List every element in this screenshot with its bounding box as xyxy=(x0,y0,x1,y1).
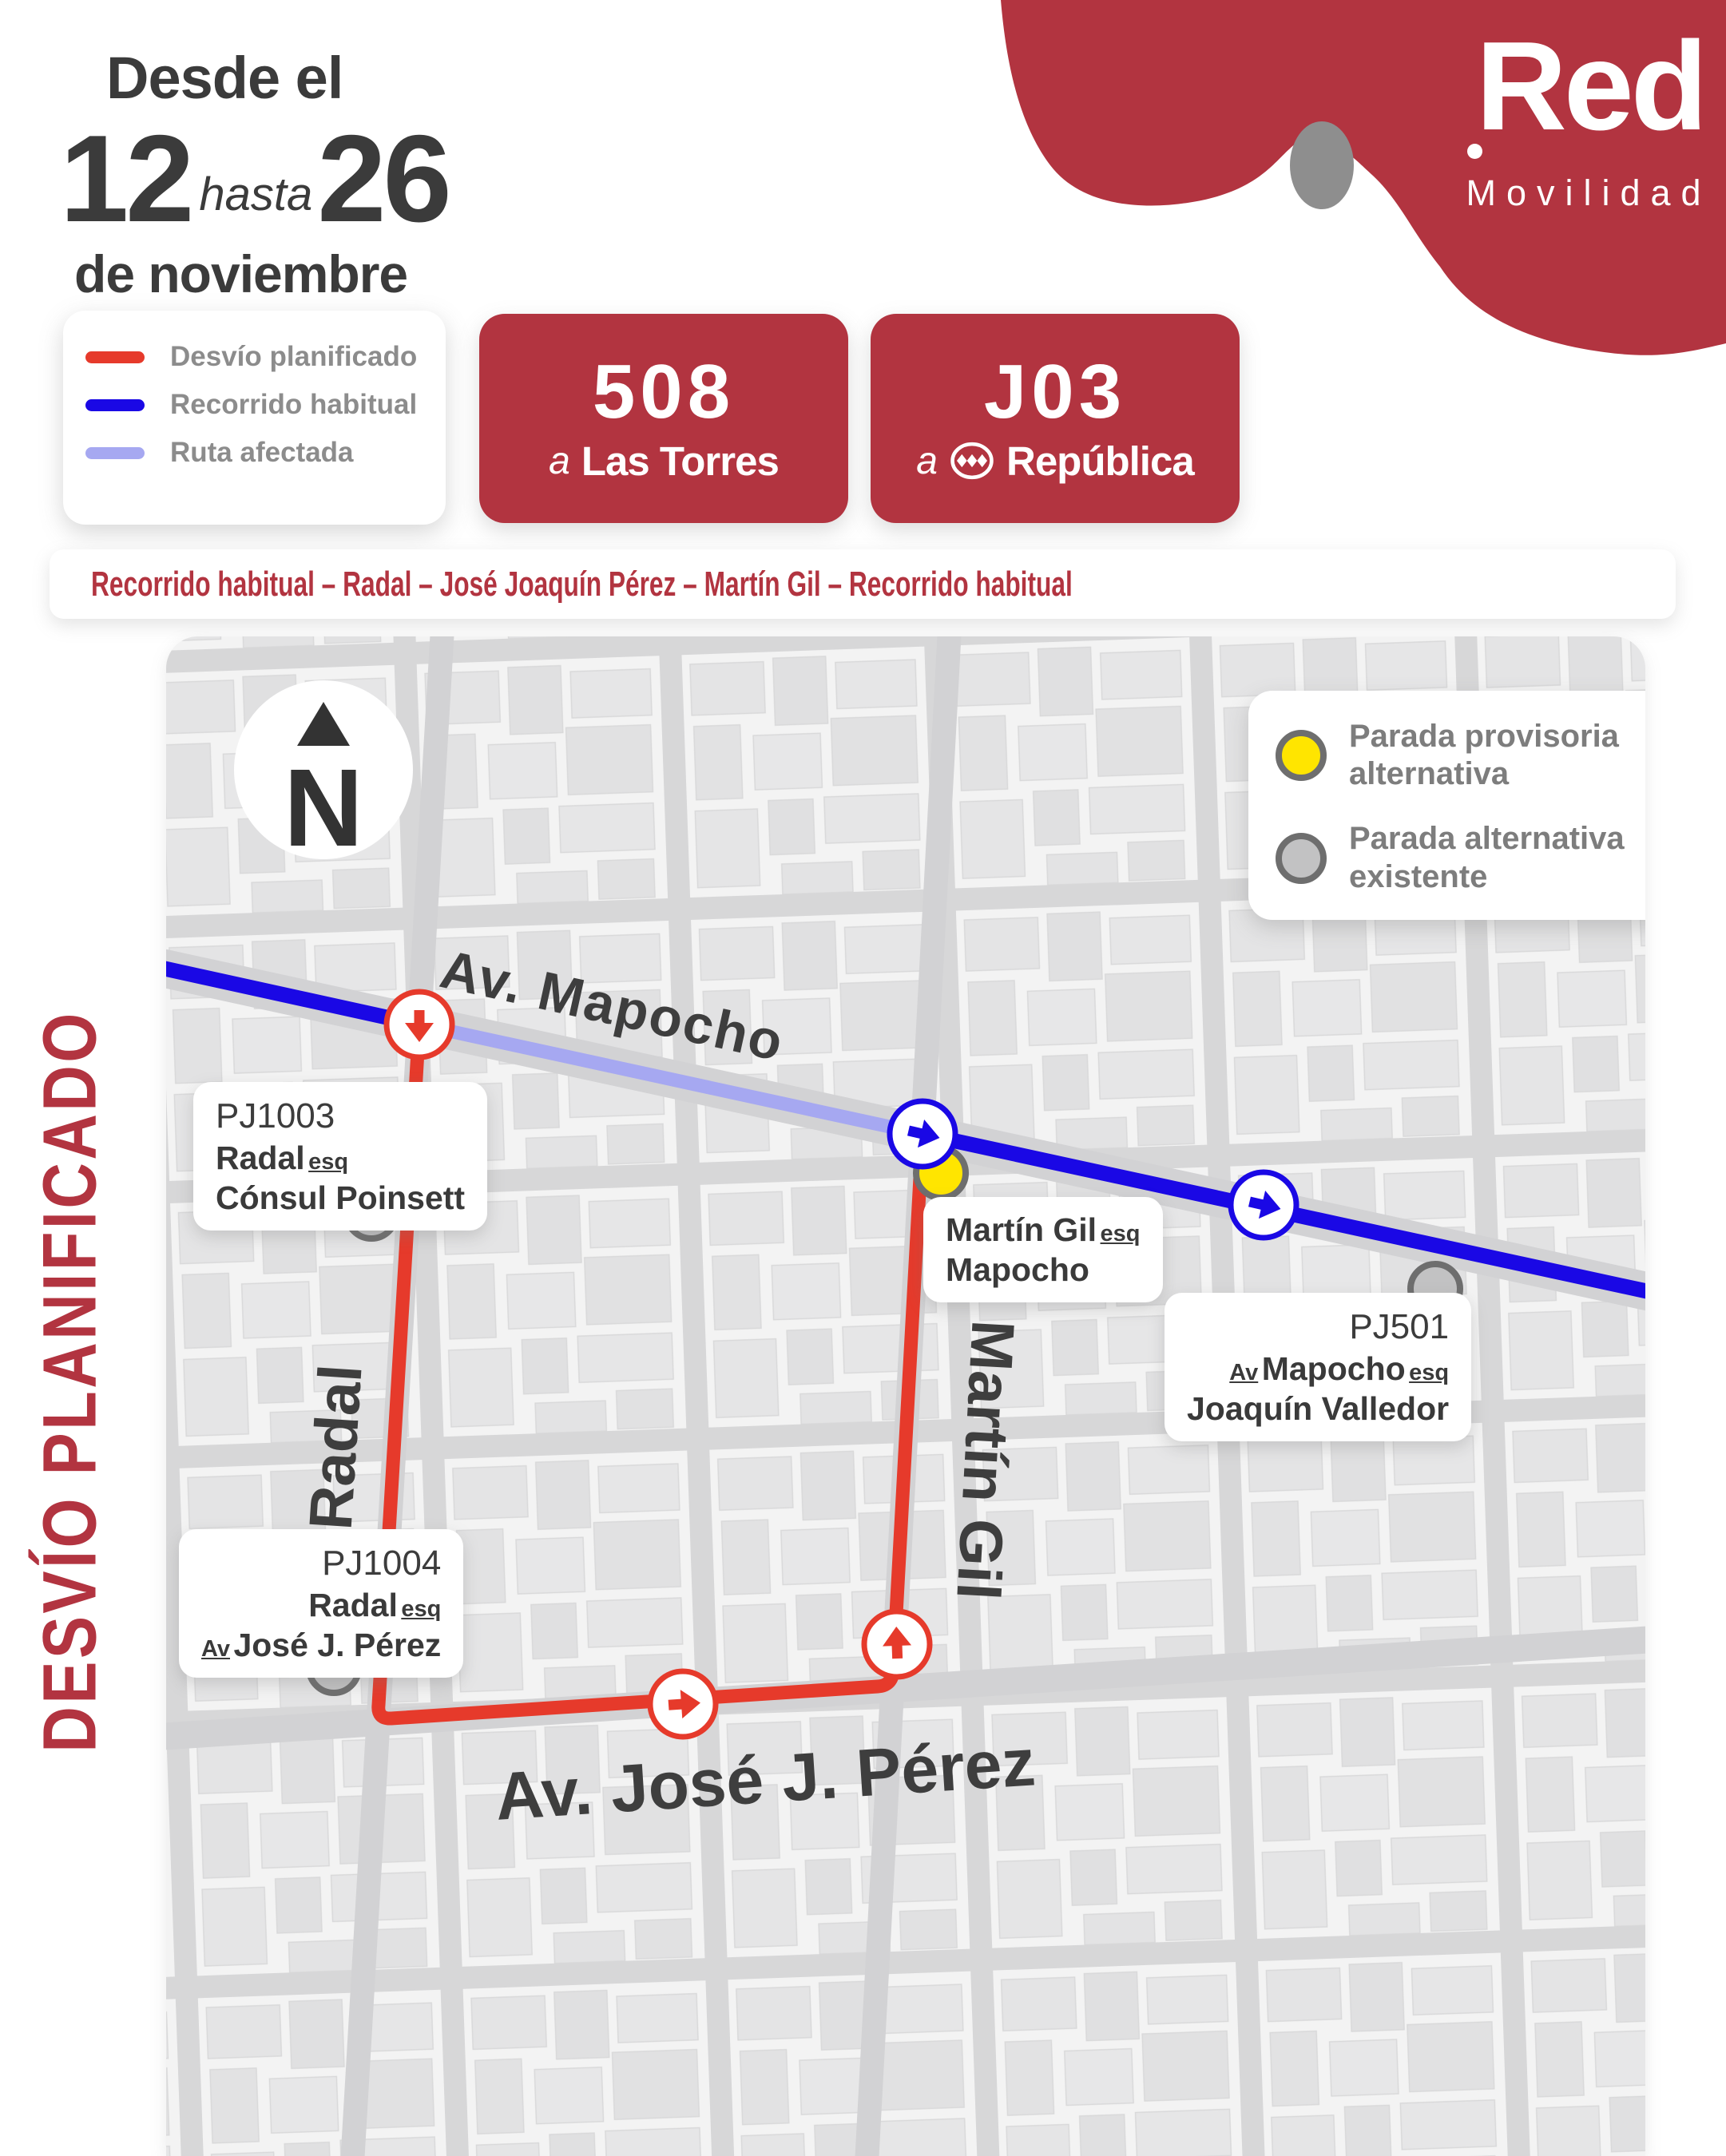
stop-card-martin-gil: Martín Gil esq Mapocho xyxy=(923,1197,1163,1302)
stop-street: Cónsul Poinsett xyxy=(216,1179,465,1216)
line-legend-card: Desvío planificado Recorrido habitual Ru… xyxy=(63,311,446,525)
route-button-508[interactable]: 508 a Las Torres xyxy=(479,314,848,523)
route-code: J03 xyxy=(984,352,1126,433)
stop-card-pj501: PJ501 Av Mapocho esq Joaquín Valledor xyxy=(1165,1293,1471,1441)
stop-code: PJ1004 xyxy=(201,1542,441,1585)
route-destination: República xyxy=(1006,438,1194,485)
habitual-direction-marker2-right-arrow-icon xyxy=(1231,1172,1296,1238)
yellow-stop-icon xyxy=(1276,730,1327,781)
stop-legend-card: Parada provisoria alternativa Parada alt… xyxy=(1248,691,1645,920)
detour-direction-marker-right-arrow-icon xyxy=(650,1671,716,1737)
detour-description-text: Recorrido habitual – Radal – José Joaquí… xyxy=(91,565,1073,604)
stop-legend-label: Parada alternativa existente xyxy=(1349,820,1645,895)
date-to: 26 xyxy=(317,117,448,240)
stop-legend-label: Parada provisoria alternativa xyxy=(1349,718,1645,793)
street-label-radal: Radal xyxy=(296,1362,375,1532)
brand-subtitle: Movilidad xyxy=(1429,172,1726,214)
detour-description-bar: Recorrido habitual – Radal – José Joaquí… xyxy=(50,549,1676,619)
stop-av-tag: Av xyxy=(201,1636,230,1662)
legend-label: Desvío planificado xyxy=(170,341,417,373)
stop-esq-tag: esq xyxy=(1409,1360,1449,1385)
legend-row-affected: Ruta afectada xyxy=(85,429,446,477)
habitual-direction-marker-right-arrow-icon xyxy=(890,1101,955,1167)
stop-av-tag: Av xyxy=(1229,1360,1258,1385)
route-dest-prefix: a xyxy=(916,439,938,483)
stop-code: PJ1003 xyxy=(216,1095,465,1138)
stop-street: Joaquín Valledor xyxy=(1187,1390,1449,1427)
blob-gray-dot xyxy=(1290,121,1354,209)
legend-row-detour: Desvío planificado xyxy=(85,333,446,381)
detour-start-marker-down-arrow-icon xyxy=(387,992,452,1057)
date-connector: hasta xyxy=(199,168,312,221)
stop-legend-existing: Parada alternativa existente xyxy=(1276,820,1645,895)
date-from: 12 xyxy=(60,117,191,240)
route-dest-prefix: a xyxy=(549,439,570,483)
compass-letter: N xyxy=(284,747,363,870)
stop-esq-tag: esq xyxy=(401,1596,441,1622)
route-code: 508 xyxy=(593,352,735,433)
stop-street: Radal xyxy=(308,1587,398,1623)
stop-esq-tag: esq xyxy=(308,1149,348,1175)
legend-label: Recorrido habitual xyxy=(170,389,417,421)
date-month: de noviembre xyxy=(60,244,507,304)
stop-card-pj1003: PJ1003 Radal esq Cónsul Poinsett xyxy=(193,1082,487,1231)
stop-street: José J. Pérez xyxy=(233,1627,441,1663)
stop-card-pj1004: PJ1004 Radal esq Av José J. Pérez xyxy=(179,1529,463,1678)
stop-street: Radal xyxy=(216,1139,305,1176)
detour-line-swatch xyxy=(85,351,145,363)
legend-label: Ruta afectada xyxy=(170,437,354,469)
route-button-j03[interactable]: J03 a República xyxy=(871,314,1240,523)
detour-direction-marker-up-arrow-icon xyxy=(864,1611,930,1677)
stop-street: Mapocho xyxy=(946,1251,1089,1288)
gray-stop-icon xyxy=(1276,833,1327,884)
date-range-block: Desde el 12 hasta 26 de noviembre xyxy=(60,44,507,304)
metro-icon xyxy=(949,438,995,484)
stop-code: PJ501 xyxy=(1187,1306,1449,1349)
stop-legend-provisional: Parada provisoria alternativa xyxy=(1276,718,1645,793)
habitual-line-swatch xyxy=(85,399,145,411)
stop-esq-tag: esq xyxy=(1101,1221,1141,1246)
legend-row-habitual: Recorrido habitual xyxy=(85,381,446,429)
stop-street: Martín Gil xyxy=(946,1211,1097,1248)
date-prefix: Desde el xyxy=(60,44,507,112)
route-destination: Las Torres xyxy=(581,438,779,485)
stop-street: Mapocho xyxy=(1262,1350,1406,1387)
brand-logo-dot xyxy=(1467,144,1482,159)
side-title: DESVÍO PLANIFICADO xyxy=(27,1010,114,1752)
brand-logo-text: Red xyxy=(1438,14,1726,159)
detour-map: Av. Mapocho Radal Martín Gil Av. José J.… xyxy=(166,636,1645,2156)
affected-line-swatch xyxy=(85,447,145,459)
